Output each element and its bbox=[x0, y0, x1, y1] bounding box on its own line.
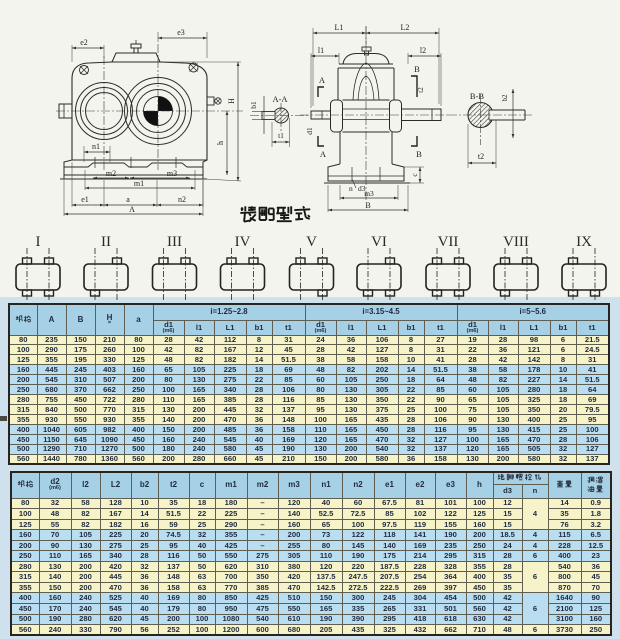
svg-text:e1: e1 bbox=[81, 195, 89, 204]
svg-text:VII: VII bbox=[438, 234, 459, 250]
svg-text:t2: t2 bbox=[417, 87, 425, 93]
svg-text:VIII: VIII bbox=[503, 234, 529, 250]
svg-text:m2: m2 bbox=[106, 169, 116, 178]
svg-text:VI: VI bbox=[371, 234, 387, 250]
svg-text:A: A bbox=[320, 149, 327, 159]
svg-text:h: h bbox=[216, 141, 225, 145]
svg-text:L1: L1 bbox=[335, 23, 344, 32]
svg-text:a: a bbox=[126, 195, 130, 204]
svg-text:m3: m3 bbox=[167, 169, 177, 178]
svg-text:V: V bbox=[306, 234, 317, 250]
svg-text:IX: IX bbox=[576, 234, 592, 250]
svg-text:m3: m3 bbox=[364, 189, 374, 198]
svg-text:b2: b2 bbox=[501, 94, 509, 102]
svg-text:n2: n2 bbox=[178, 195, 186, 204]
svg-text:B: B bbox=[416, 149, 422, 159]
svg-text:II: II bbox=[101, 234, 111, 250]
svg-text:c: c bbox=[410, 173, 419, 177]
svg-text:I: I bbox=[36, 234, 41, 250]
svg-text:e3: e3 bbox=[177, 28, 185, 37]
svg-text:A-A: A-A bbox=[272, 94, 288, 104]
svg-text:IV: IV bbox=[235, 234, 251, 250]
svg-text:A: A bbox=[129, 205, 135, 214]
svg-text:A: A bbox=[319, 75, 326, 85]
svg-text:d1: d1 bbox=[305, 127, 314, 135]
svg-text:b1: b1 bbox=[249, 101, 258, 109]
svg-text:e2: e2 bbox=[80, 38, 88, 47]
svg-text:H: H bbox=[227, 98, 236, 104]
svg-text:t2: t2 bbox=[478, 152, 484, 161]
svg-text:l2: l2 bbox=[420, 46, 426, 55]
svg-text:t1: t1 bbox=[278, 131, 284, 140]
svg-text:B: B bbox=[365, 201, 370, 210]
svg-text:n1: n1 bbox=[92, 142, 100, 151]
svg-text:L2: L2 bbox=[401, 23, 410, 32]
svg-text:l1: l1 bbox=[318, 46, 324, 55]
svg-text:B-B: B-B bbox=[470, 91, 485, 101]
svg-text:III: III bbox=[167, 234, 182, 250]
svg-text:B: B bbox=[414, 64, 420, 74]
svg-text:n: n bbox=[349, 184, 353, 193]
svg-text:m1: m1 bbox=[134, 179, 144, 188]
